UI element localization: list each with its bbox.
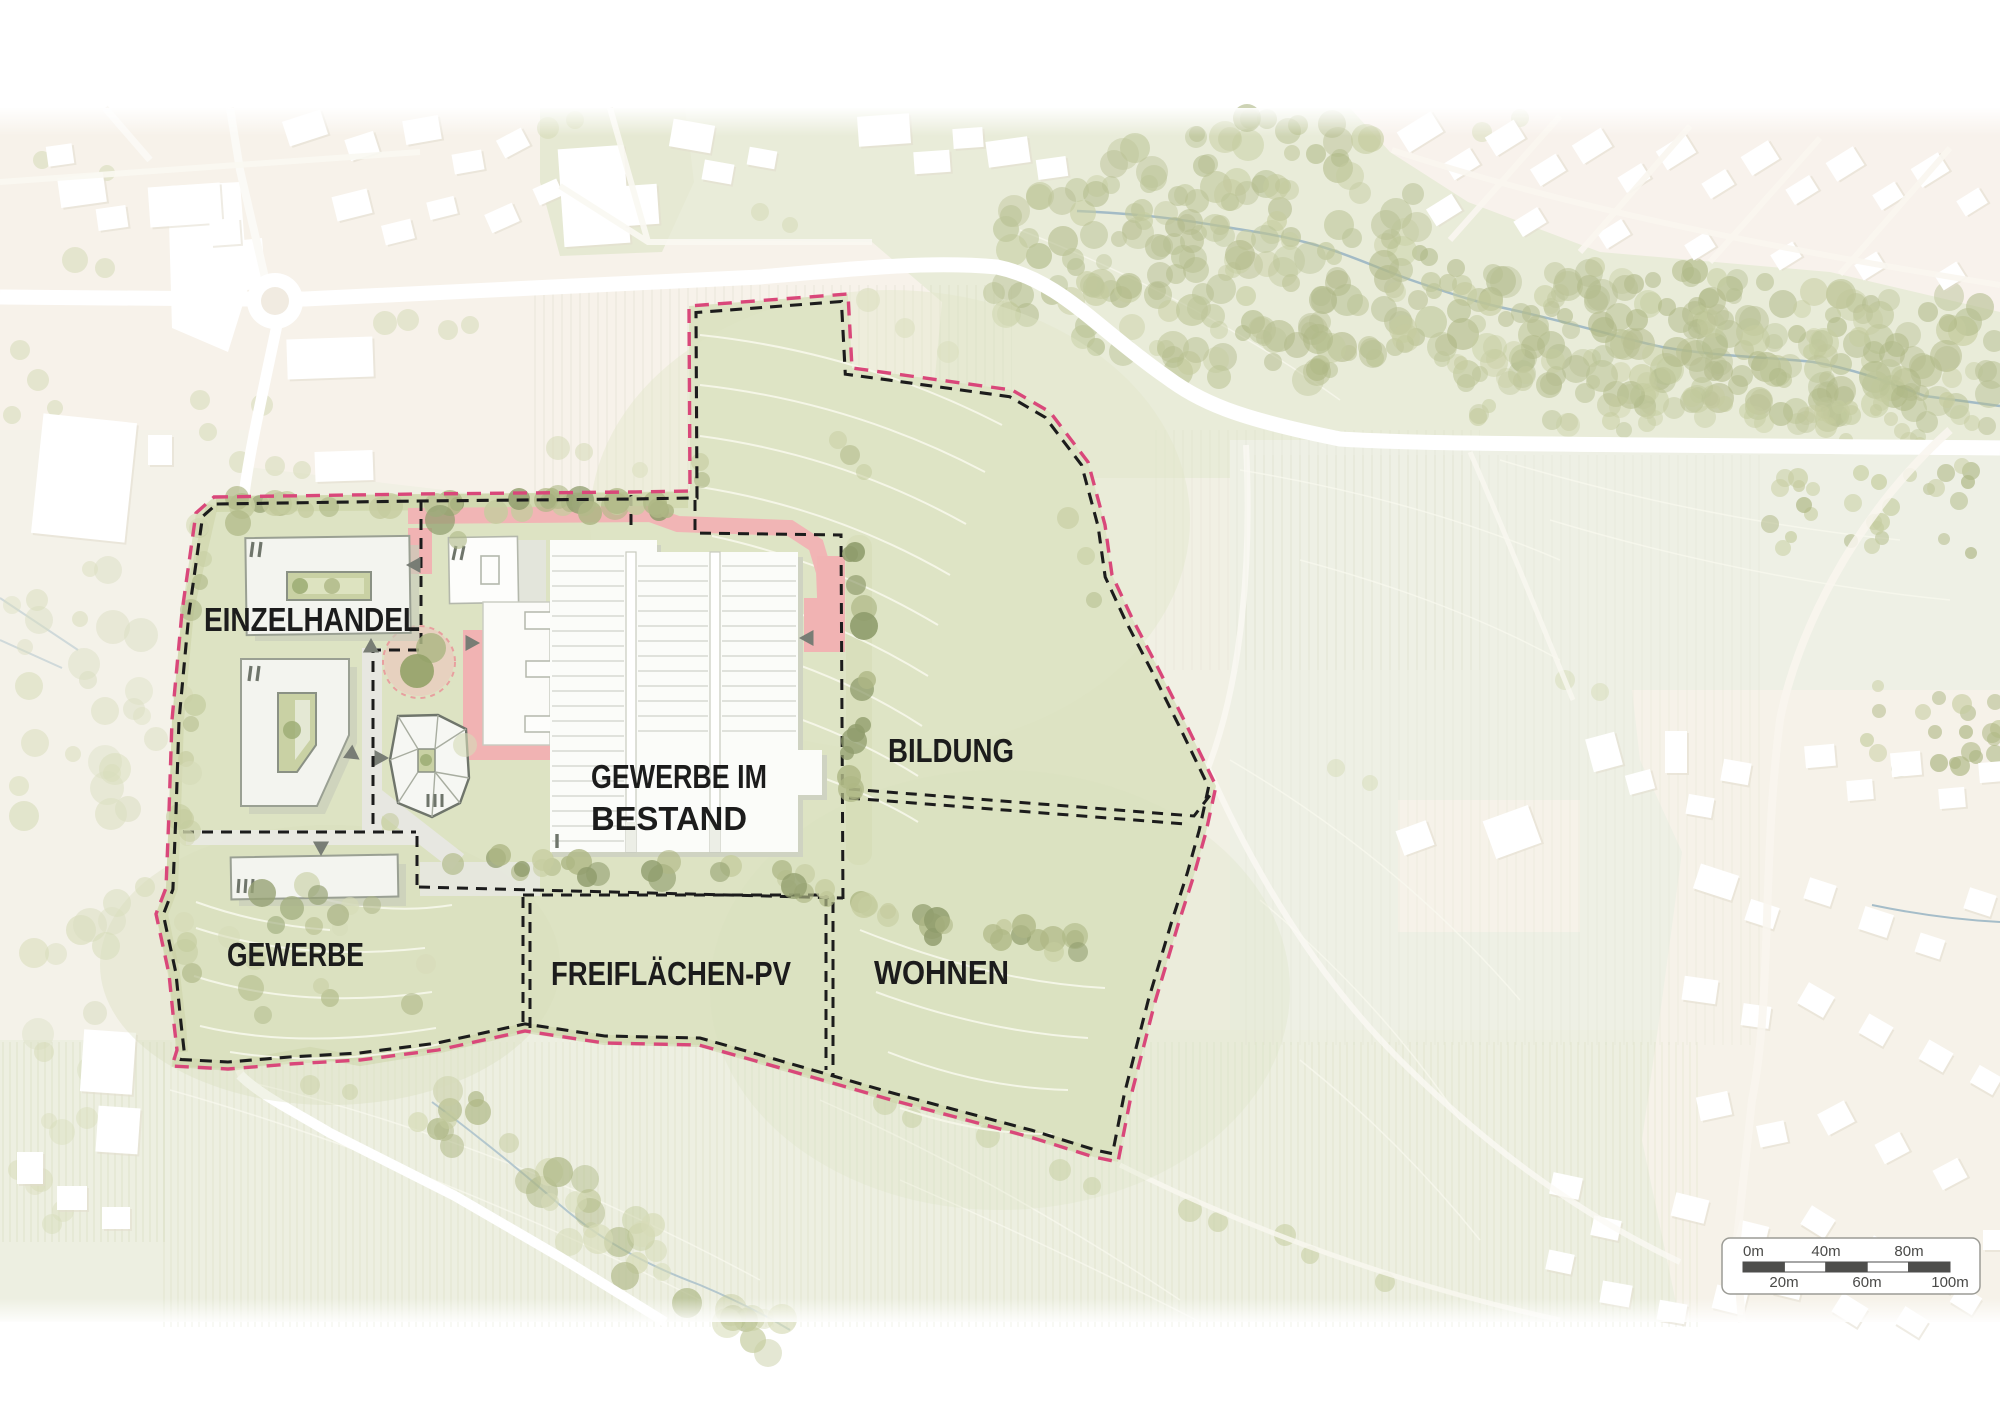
svg-text:0m: 0m [1743,1243,1764,1260]
svg-text:60m: 60m [1852,1274,1881,1291]
svg-text:WOHNEN: WOHNEN [874,954,1009,991]
svg-text:BILDUNG: BILDUNG [888,732,1014,769]
svg-text:80m: 80m [1894,1243,1923,1260]
svg-text:GEWERBE: GEWERBE [227,936,364,973]
svg-text:100m: 100m [1931,1274,1969,1291]
svg-text:GEWERBE IM: GEWERBE IM [591,758,767,795]
svg-text:BESTAND: BESTAND [591,800,747,837]
svg-text:40m: 40m [1811,1243,1840,1260]
svg-text:FREIFLÄCHEN-PV: FREIFLÄCHEN-PV [551,955,791,992]
svg-text:EINZELHANDEL: EINZELHANDEL [204,601,420,638]
svg-text:20m: 20m [1769,1274,1798,1291]
